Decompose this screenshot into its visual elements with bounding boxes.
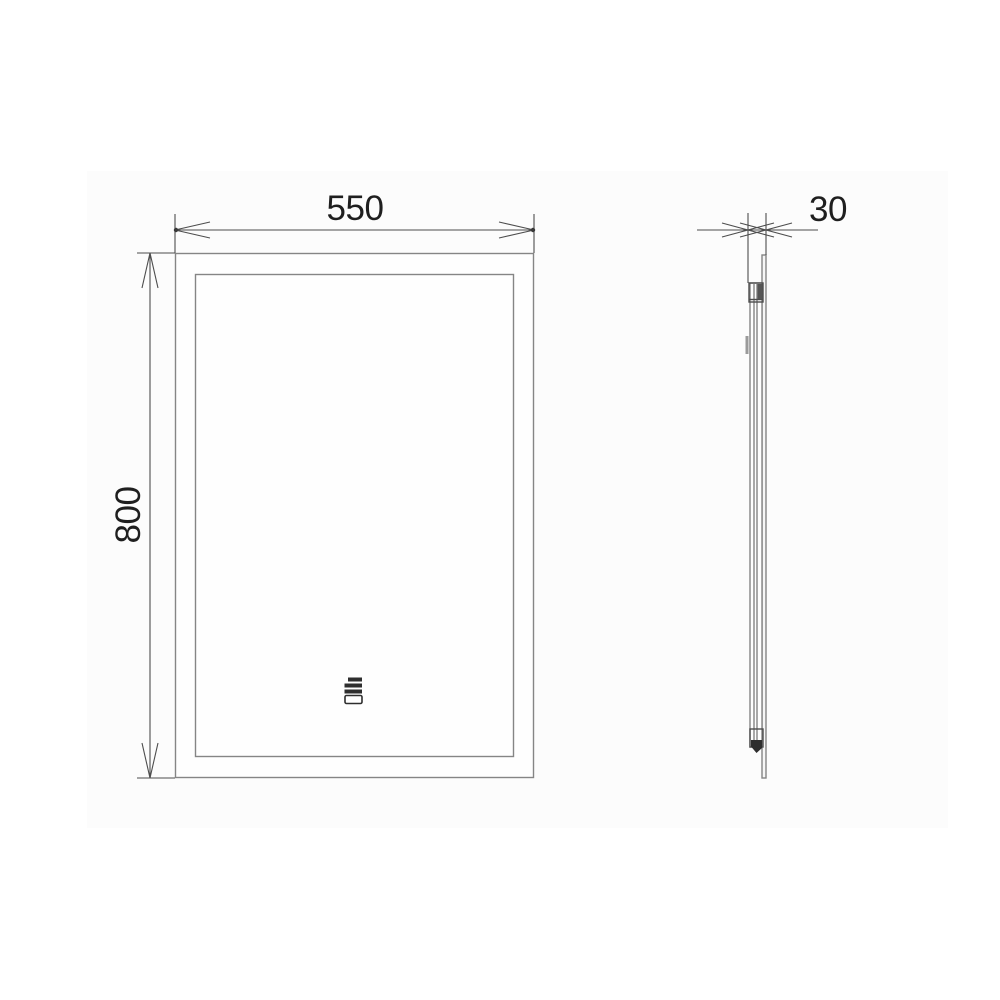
depth-dimension-label: 30 — [809, 190, 847, 229]
side-switch — [746, 336, 749, 354]
height-dimension-label: 800 — [109, 487, 148, 544]
mirror-dimension-diagram: 550 800 — [0, 0, 1000, 1000]
arrow-tip-dot — [531, 228, 535, 232]
side-view-frame-profile — [750, 283, 762, 747]
width-dimension-label: 550 — [327, 189, 384, 228]
arrow-tip-dot — [174, 228, 178, 232]
technical-drawing-page: 550 800 — [0, 0, 1000, 1000]
front-view — [176, 254, 534, 778]
